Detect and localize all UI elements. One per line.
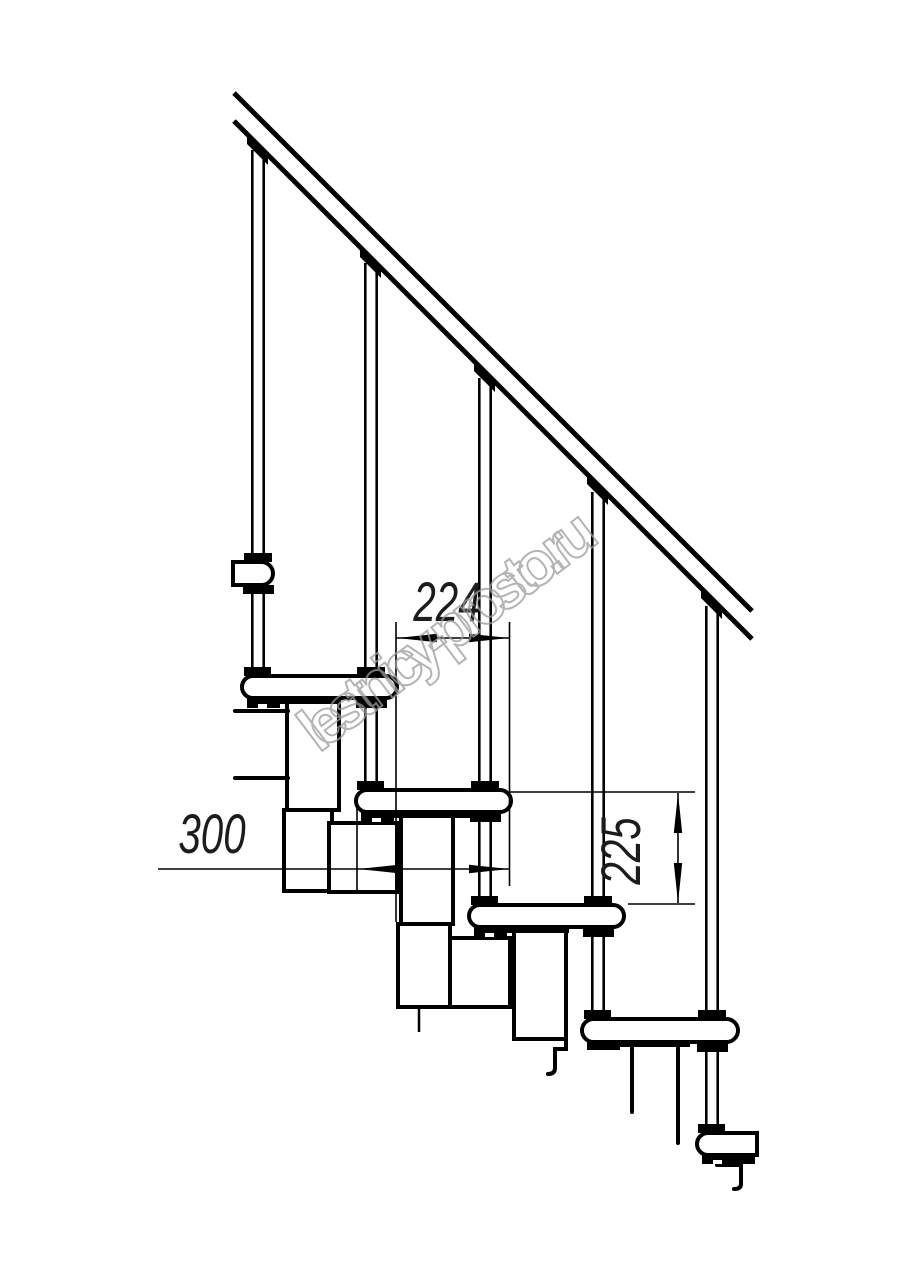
handrail-upper-line — [234, 93, 752, 611]
baluster-2-foot — [357, 781, 384, 790]
baluster-5-foot — [698, 1124, 725, 1133]
baluster-1-tab — [243, 585, 274, 594]
module-tube-step4 — [442, 938, 510, 1007]
under-tread-strip-4 — [507, 926, 569, 933]
site-watermark: lestnicy-prosto.ru — [286, 499, 607, 765]
baluster-1-collar — [244, 553, 272, 562]
fittings — [243, 135, 755, 1164]
module-tab-4-notch — [485, 933, 494, 937]
baluster-1-foot — [244, 667, 271, 676]
baluster-4 — [592, 492, 603, 1017]
module-tab-2-notch — [258, 704, 267, 708]
staircase-drawing-page: 224 300 225 lestnicy-prosto.ru — [0, 0, 914, 1280]
tread-3 — [356, 790, 511, 812]
tread-1-partial — [233, 562, 273, 585]
baluster-5-tab — [697, 1043, 728, 1052]
module-tube-step5-fragment — [548, 1039, 566, 1074]
module-step6-fragment — [717, 1165, 741, 1189]
baluster-4-tab — [583, 928, 614, 937]
tread-6-partial — [697, 1133, 757, 1155]
baluster-3-foot — [471, 896, 498, 905]
dim-label-tread-depth: 300 — [178, 804, 245, 866]
stringer-modules — [235, 698, 741, 1189]
module-lower-step2 — [284, 810, 332, 891]
arrow-300-right — [469, 865, 509, 873]
baluster-3-collar — [471, 781, 499, 790]
under-tread-strip-5 — [620, 1040, 690, 1047]
module-lower-step3 — [398, 924, 450, 1007]
baluster-3-tab — [470, 813, 501, 822]
module-riser-step4 — [514, 927, 566, 1039]
arrow-225-up — [674, 793, 682, 833]
module-tab-5 — [587, 1040, 620, 1050]
dim-label-step-rise: 225 — [591, 817, 653, 886]
staircase-technical-drawing: 224 300 225 lestnicy-prosto.ru — [0, 0, 914, 1280]
under-tread-strip-3 — [394, 811, 474, 818]
module-tab-3-notch — [372, 818, 381, 822]
module-tube-step3 — [329, 823, 397, 892]
module-tab-6-notch — [713, 1160, 722, 1164]
tread-4 — [469, 905, 624, 927]
module-riser-step3 — [401, 812, 453, 924]
baluster-4-foot — [584, 1010, 611, 1019]
baluster-5-collar — [698, 1010, 726, 1019]
baluster-5 — [706, 606, 717, 1131]
baluster-1 — [252, 150, 263, 674]
baluster-4-collar — [584, 896, 612, 905]
arrow-225-down — [674, 863, 682, 903]
module-wedge-6 — [733, 1155, 755, 1164]
tread-5 — [582, 1019, 738, 1042]
